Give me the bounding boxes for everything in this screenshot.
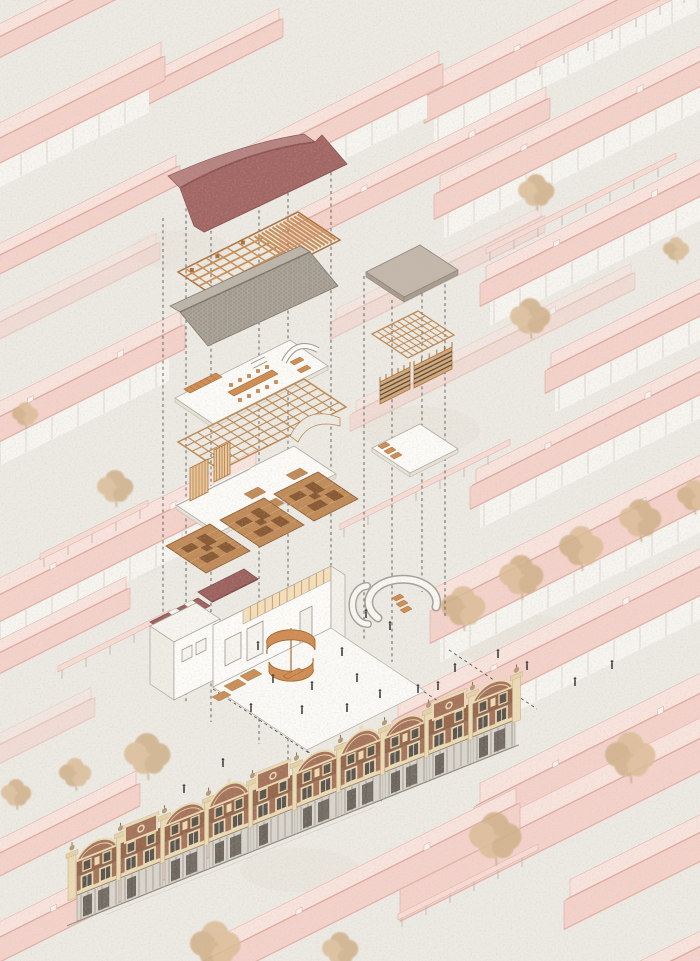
axonometric-scene xyxy=(0,0,700,961)
exploded-axonometric-illustration xyxy=(0,0,700,961)
paper-grain-overlay xyxy=(0,0,700,961)
grain-texture xyxy=(0,0,700,961)
